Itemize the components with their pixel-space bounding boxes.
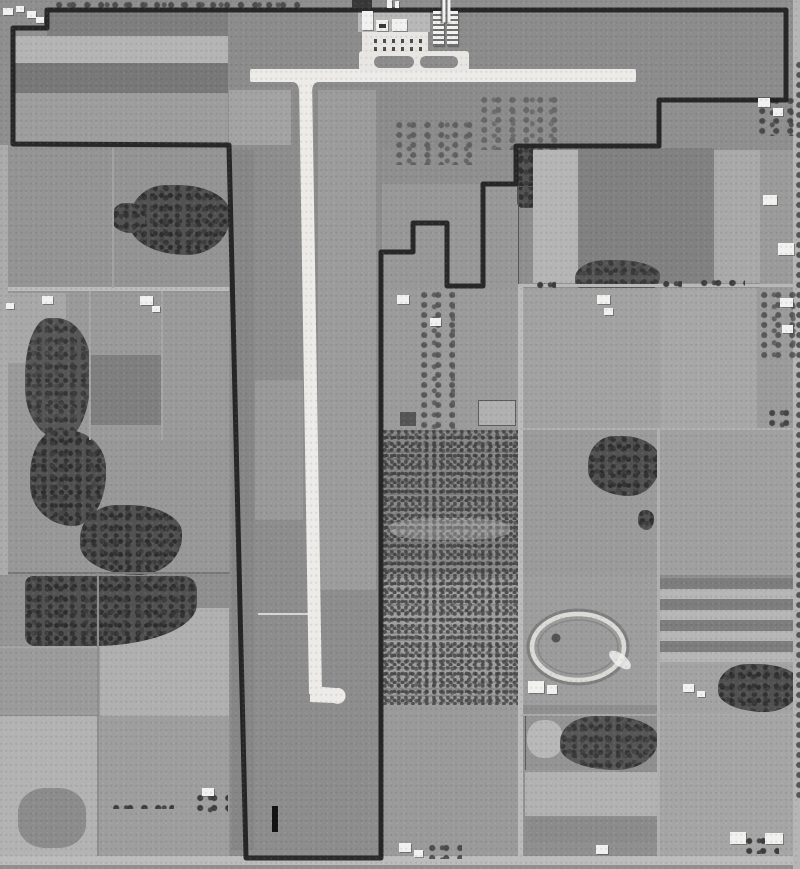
farmstead xyxy=(397,295,409,304)
farmstead xyxy=(683,684,694,692)
apron-grass-island xyxy=(420,56,458,68)
farmstead xyxy=(6,303,14,309)
property-boundary xyxy=(13,10,786,858)
farmstead xyxy=(152,306,160,312)
farmstead xyxy=(430,318,441,326)
hangar-building xyxy=(362,11,373,30)
racetrack-buildings xyxy=(547,685,557,694)
top-road-structure xyxy=(352,0,372,8)
runway-north-south xyxy=(299,80,322,694)
airport-building xyxy=(392,19,407,31)
farmstead xyxy=(596,845,608,854)
farmstead xyxy=(597,295,610,304)
farmstead xyxy=(16,6,24,12)
farmstead xyxy=(730,832,746,844)
farmstead xyxy=(36,17,44,23)
farmstead xyxy=(765,833,783,844)
farmstead xyxy=(42,296,53,304)
farmstead xyxy=(140,296,153,305)
farmstead xyxy=(697,691,705,697)
apron-ground-marks xyxy=(374,47,422,51)
apron-grass-island xyxy=(374,56,414,68)
farmstead xyxy=(604,308,613,315)
water-tower xyxy=(395,1,399,8)
farmstead xyxy=(763,195,777,205)
aerial-photo xyxy=(0,0,800,869)
racetrack-buildings xyxy=(528,681,544,693)
infield-dark-spot xyxy=(552,634,561,643)
farmstead xyxy=(758,98,770,107)
racetrack-oval xyxy=(528,610,634,684)
farmstead xyxy=(414,850,423,857)
farmstead xyxy=(3,8,13,15)
runway-turnaround-hook xyxy=(310,686,346,704)
farmstead xyxy=(773,108,783,116)
ink-tick-mark xyxy=(272,806,278,832)
farmstead xyxy=(782,325,793,333)
photo-overlay xyxy=(0,0,800,869)
water-tower xyxy=(387,0,392,8)
apron-ground-marks xyxy=(374,39,422,43)
farmstead xyxy=(399,843,411,852)
farmstead xyxy=(27,11,36,18)
farmstead xyxy=(778,243,794,255)
building-door-marks xyxy=(379,24,386,28)
building-row xyxy=(442,0,451,23)
farmstead xyxy=(780,298,793,307)
farmstead xyxy=(202,788,214,796)
